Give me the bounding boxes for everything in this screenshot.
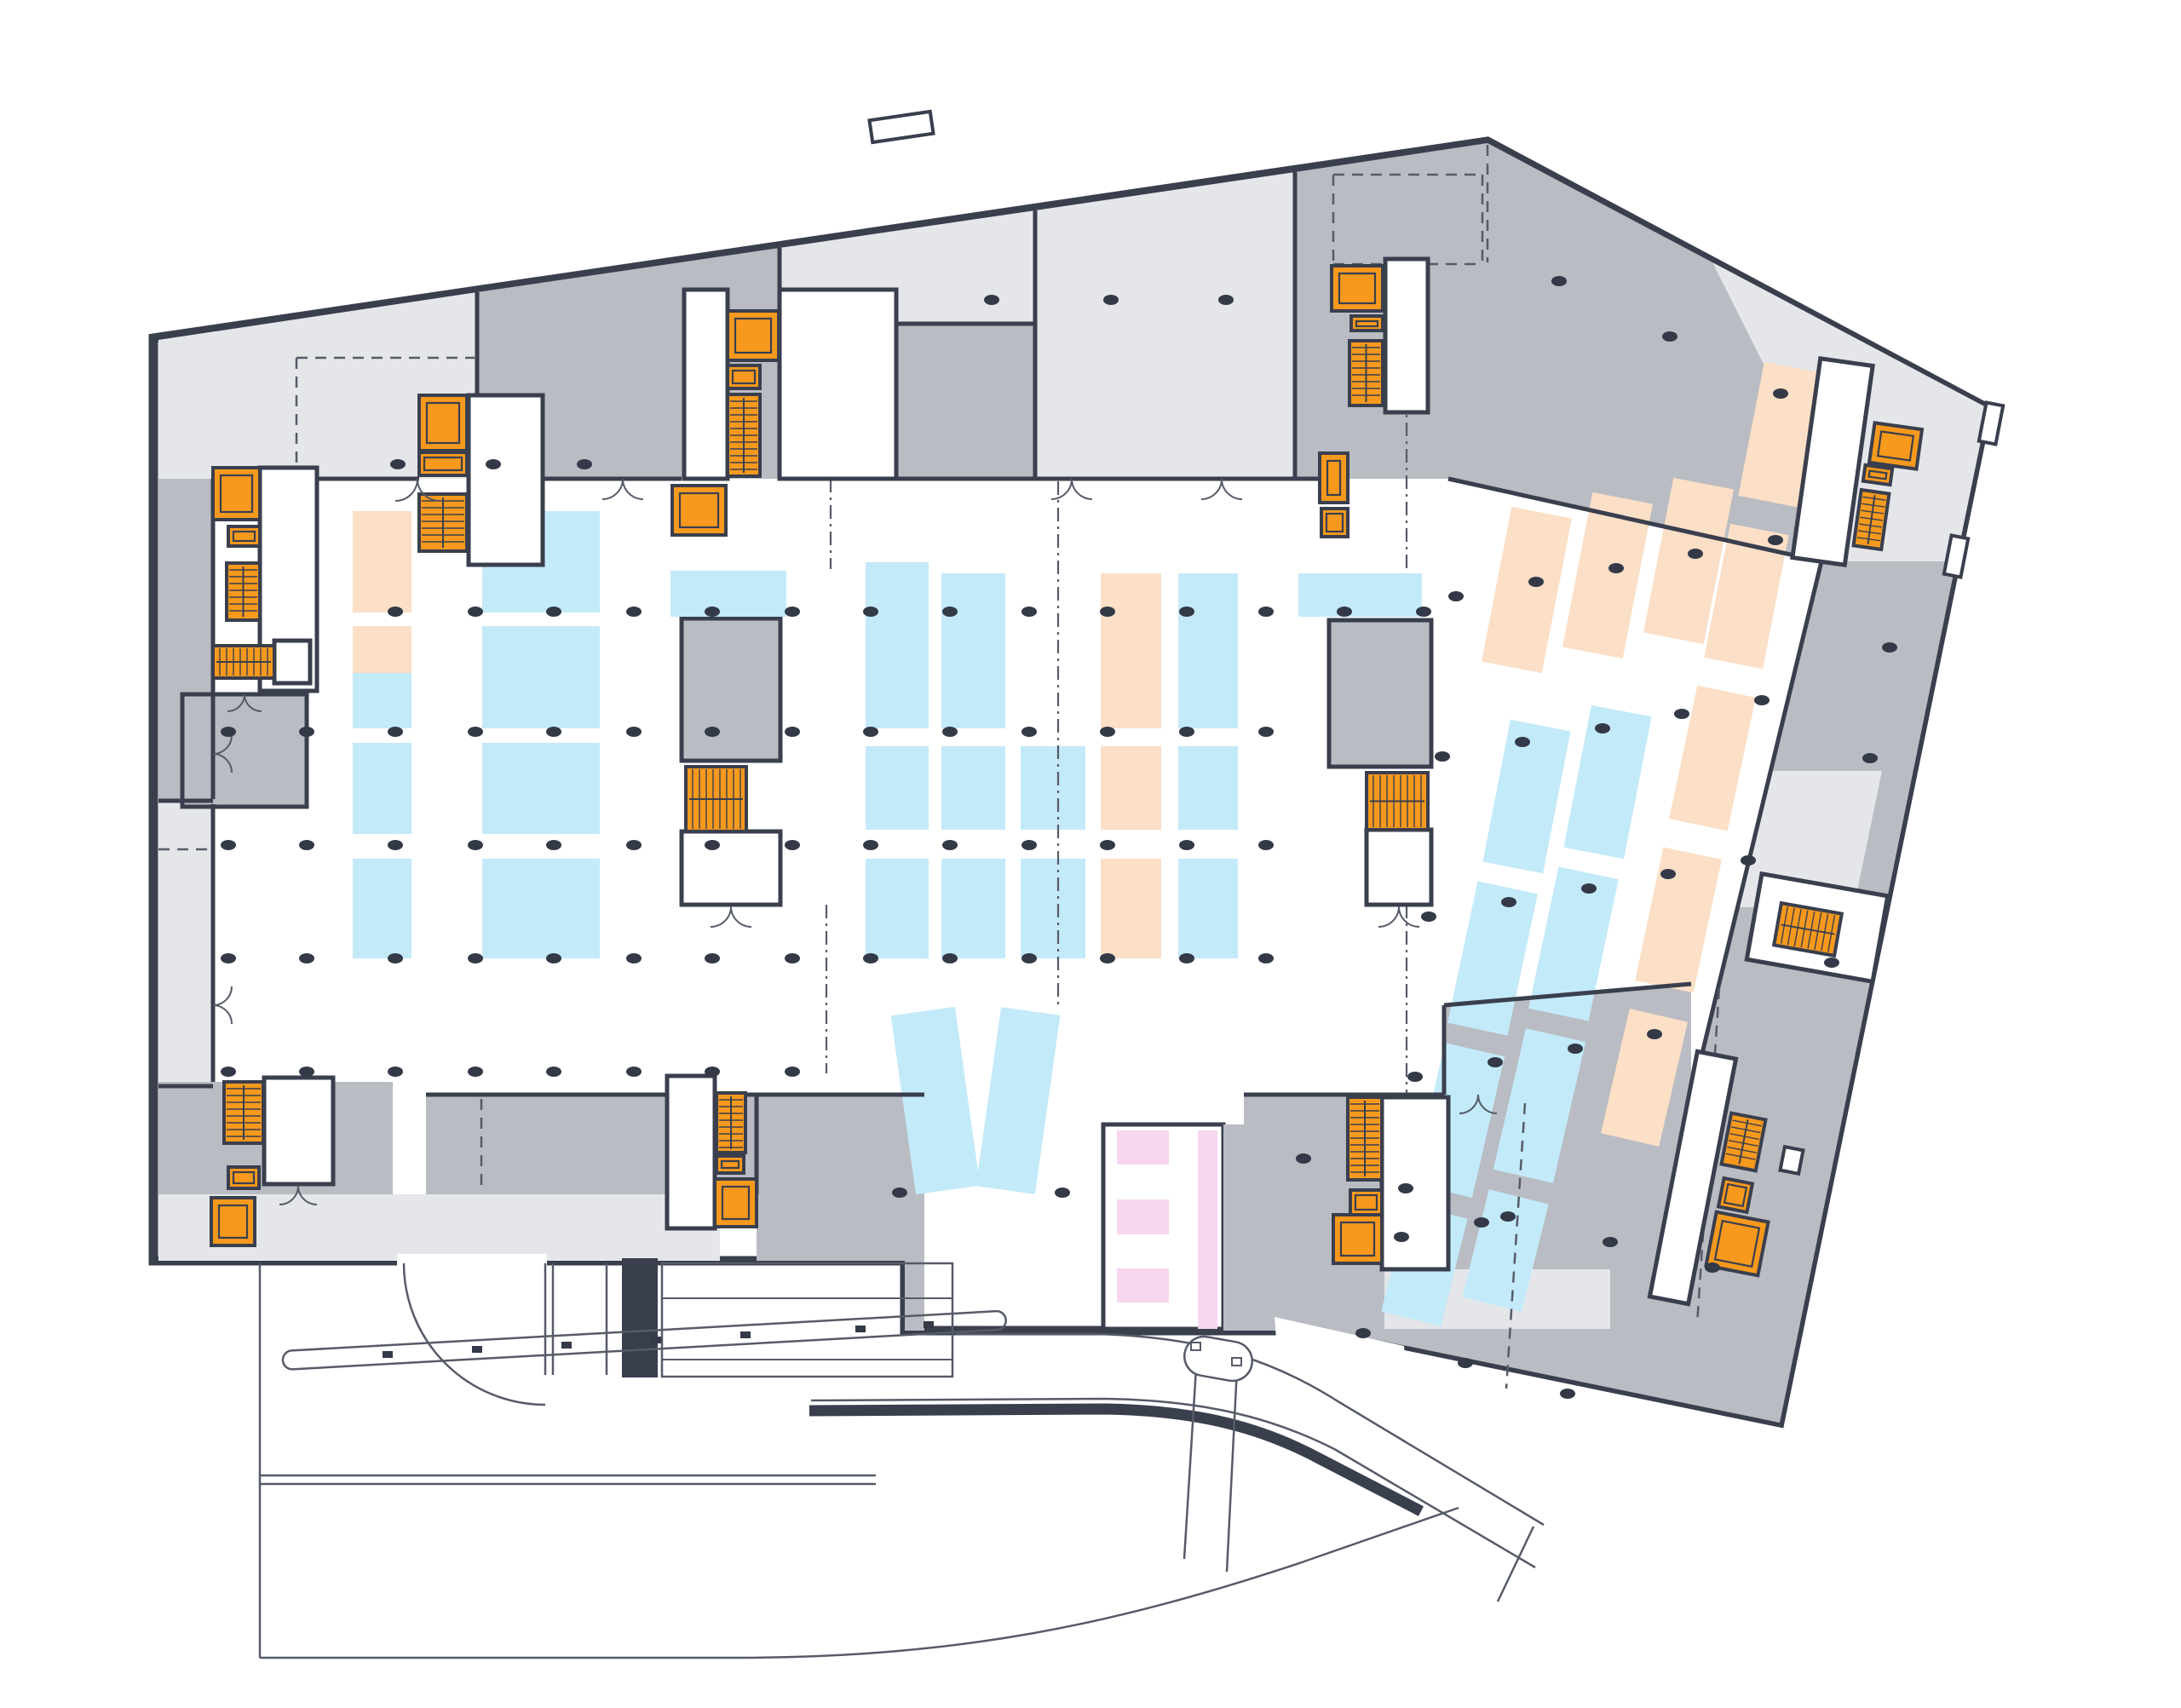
zone-strip-left-light [158,801,213,1086]
divider-dot [740,1331,751,1338]
column-dot [1581,883,1597,894]
divider-dot [855,1326,866,1332]
elevator-small-icon-shaft [1863,465,1892,485]
stall-blue [1021,746,1085,830]
column-dot [546,953,561,963]
column-dot [1021,607,1037,617]
zone-band-top-center3 [1035,172,1295,479]
column-dot [892,1188,907,1198]
elevator-icon [1333,1215,1382,1263]
column-dot [468,727,483,737]
column-dot [299,727,314,737]
elevator-icon [672,486,726,535]
core-lobby [1367,830,1431,905]
column-dot [1258,727,1274,737]
elevator-small-icon [716,1156,744,1173]
column-dot [1551,276,1567,286]
divider-dot [383,1351,393,1358]
stall-blue [1021,859,1085,958]
core-lobby [264,1078,333,1184]
column-dot [299,840,314,850]
elevator-icon [715,1179,757,1227]
column-dot [221,1067,236,1077]
zone-room-spine-left [682,618,780,761]
column-dot [1100,840,1115,850]
column-dot [468,1067,483,1077]
elevator-small-icon-shaft [716,1156,744,1173]
stall-blue [353,673,411,728]
column-dot [1055,1188,1070,1198]
stall-blue [941,859,1005,958]
column-dot [1501,897,1516,907]
column-dot [1337,607,1352,617]
zone-room-spine-right [1329,620,1431,767]
column-dot [468,607,483,617]
column-dot [1882,642,1897,653]
column-dot [1296,1153,1311,1164]
column-dot [1421,912,1436,922]
column-dot [626,1067,642,1077]
column-dot [1394,1232,1409,1242]
window-tab [870,112,934,142]
column-dot [785,953,800,963]
zone-room-left [182,694,307,807]
column-dot [1258,840,1274,850]
elevator-small-icon [419,452,467,475]
column-dot [1021,840,1037,850]
column-dot [984,295,999,305]
column-dot [785,727,800,737]
road-edge [260,1508,1459,1658]
column-dot [1528,577,1544,587]
column-dot [1603,1237,1618,1247]
column-dot [1741,855,1756,866]
column-dot [1474,1217,1489,1228]
column-dot [942,607,958,617]
column-dot [626,953,642,963]
road-edge [811,1399,1535,1567]
stall-blue [1298,573,1422,617]
column-dot [546,727,561,737]
stair-core [1722,1113,1766,1171]
stall-peach [1101,746,1161,830]
zone-zone-bottom-center2 [757,1095,924,1261]
stall-blue [1178,746,1238,830]
column-dot [705,727,720,737]
core-lobby [1385,259,1428,412]
stall-blue [866,859,929,958]
divider-dot [924,1321,934,1328]
window-tab [1781,1147,1804,1174]
column-dot [942,840,958,850]
column-dot [1773,388,1788,399]
stair-core [1367,773,1428,830]
column-dot [1754,695,1770,705]
column-dot [1179,953,1194,963]
wall-block [622,1258,658,1377]
stair-core [1348,1097,1382,1180]
stair-core [716,1093,745,1153]
column-dot [785,1067,800,1077]
core-lobby [274,641,310,683]
column-dot [1179,727,1194,737]
core-lobby [1382,1097,1448,1269]
stall-blue [941,746,1005,830]
column-dot [221,840,236,850]
stall-blue [482,626,600,728]
stair-core [419,494,467,551]
column-dot [1595,723,1610,733]
elevator-icon [1869,423,1922,469]
elevator-icon [728,311,779,360]
core-lobby [469,395,543,565]
column-dot [942,953,958,963]
column-dot [486,459,501,469]
column-dot [1500,1211,1516,1222]
core-lobby [667,1076,715,1228]
column-dot [863,840,878,850]
column-dot [1435,751,1450,762]
column-dot [388,607,403,617]
elevator-small-icon-shaft [1718,1178,1752,1212]
stair-core [728,394,760,476]
column-dot [1407,1072,1423,1082]
stair-core [1774,903,1842,956]
door-gap-patch [397,1254,547,1271]
column-dot [785,607,800,617]
column-dot [705,1067,720,1077]
stall-blue [353,743,411,834]
column-dot [1458,1358,1473,1368]
stall-pink [1117,1130,1169,1165]
column-dot [942,727,958,737]
elevator-icon [419,395,467,451]
column-dot [1416,607,1431,617]
column-dot [388,727,403,737]
floor-plan-canvas [0,0,2181,1708]
gate-swing-arc [404,1263,545,1405]
column-dot [1448,591,1464,601]
column-dot [388,840,403,850]
column-dot [1560,1389,1575,1399]
column-dot [468,953,483,963]
stall-blue [670,571,786,617]
column-dot [1100,727,1115,737]
column-dot [388,1067,403,1077]
column-dot [1568,1044,1583,1054]
column-dot [1258,607,1274,617]
floor-plan [0,0,2181,1708]
elevator-small-icon [1321,509,1348,537]
column-dot [705,953,720,963]
stall-pink [1117,1199,1169,1234]
core-lobby [682,831,780,905]
stall-peach [353,511,411,612]
column-dot [705,607,720,617]
zone-zone-bottom-center3 [905,1261,924,1331]
stall-peach [1101,573,1161,728]
elevator-small-icon [1351,316,1383,331]
column-dot [1662,331,1677,342]
column-dot [1103,295,1119,305]
stall-peach [1101,859,1161,958]
column-dot [1021,953,1037,963]
elevator-small-icon [228,526,260,546]
column-dot [705,840,720,850]
stair-core [213,646,274,678]
elevator-icon [1332,266,1383,311]
column-dot [299,1067,314,1077]
stall-blue [1178,859,1238,958]
column-dot [1647,1029,1662,1039]
column-dot [1355,1328,1371,1338]
column-dot [577,459,592,469]
road-edge [1227,1368,1237,1572]
column-dot [1688,549,1703,559]
traffic-island [1182,1333,1256,1383]
column-dot [785,840,800,850]
column-dot [1100,953,1115,963]
elevator-small-icon [1863,465,1892,485]
stall-blue [482,859,600,958]
elevator-small-icon-shaft [419,452,467,475]
elevator-icon [213,468,260,520]
stair-core [1349,341,1383,405]
stair-core [1854,490,1890,549]
elevator-small-icon [1350,1190,1382,1215]
column-dot [1100,607,1115,617]
column-dot [1218,295,1234,305]
divider-dot [651,1337,661,1343]
column-dot [1398,1183,1413,1193]
elevator-small-icon [728,365,760,388]
core-lobby [684,290,728,479]
column-dot [221,953,236,963]
column-dot [1674,709,1689,719]
divider-dot [472,1346,482,1353]
column-dot [626,840,642,850]
stall-peach [353,626,411,673]
column-dot [546,607,561,617]
column-dot [626,727,642,737]
column-dot [863,727,878,737]
stall-blue [866,746,929,830]
column-dot [1515,737,1530,747]
stall-pink [1117,1268,1169,1303]
column-dot [863,607,878,617]
column-dot [221,727,236,737]
elevator-icon [211,1198,255,1245]
stair-core [224,1082,263,1143]
column-dot [1705,1262,1720,1273]
column-dot [1488,1057,1503,1067]
column-dot [1179,607,1194,617]
column-dot [546,1067,561,1077]
column-dot [388,953,403,963]
column-dot [546,840,561,850]
zone-zone-bottom-left-light [158,1194,393,1261]
road-edge [1184,1354,1197,1559]
column-dot [1608,563,1624,573]
column-dot [299,953,314,963]
elevator-icon [1320,453,1348,503]
column-dot [468,840,483,850]
column-dot [1179,840,1194,850]
elevator-small-icon [228,1167,259,1188]
stall-blue [941,573,1005,728]
column-dot [1660,869,1676,879]
column-dot [1258,953,1274,963]
elevator-icon-shaft [1869,423,1922,469]
column-dot [1824,958,1839,968]
divider-dot [561,1342,572,1349]
core-lobby [780,290,896,479]
stall-blue [482,743,600,834]
column-dot [390,459,406,469]
column-dot [1768,535,1783,545]
stall-blue [866,562,929,728]
elevator-small-icon [1718,1178,1752,1212]
zone-room-pink-right [1223,1124,1332,1331]
stair-core [686,767,746,831]
column-dot [863,953,878,963]
column-dot [1862,753,1878,763]
stall-pink [1198,1130,1217,1329]
stall-blue [1178,573,1238,728]
stair-core [227,563,260,620]
stall-blue [353,859,411,958]
column-dot [1021,727,1037,737]
column-dot [626,607,642,617]
